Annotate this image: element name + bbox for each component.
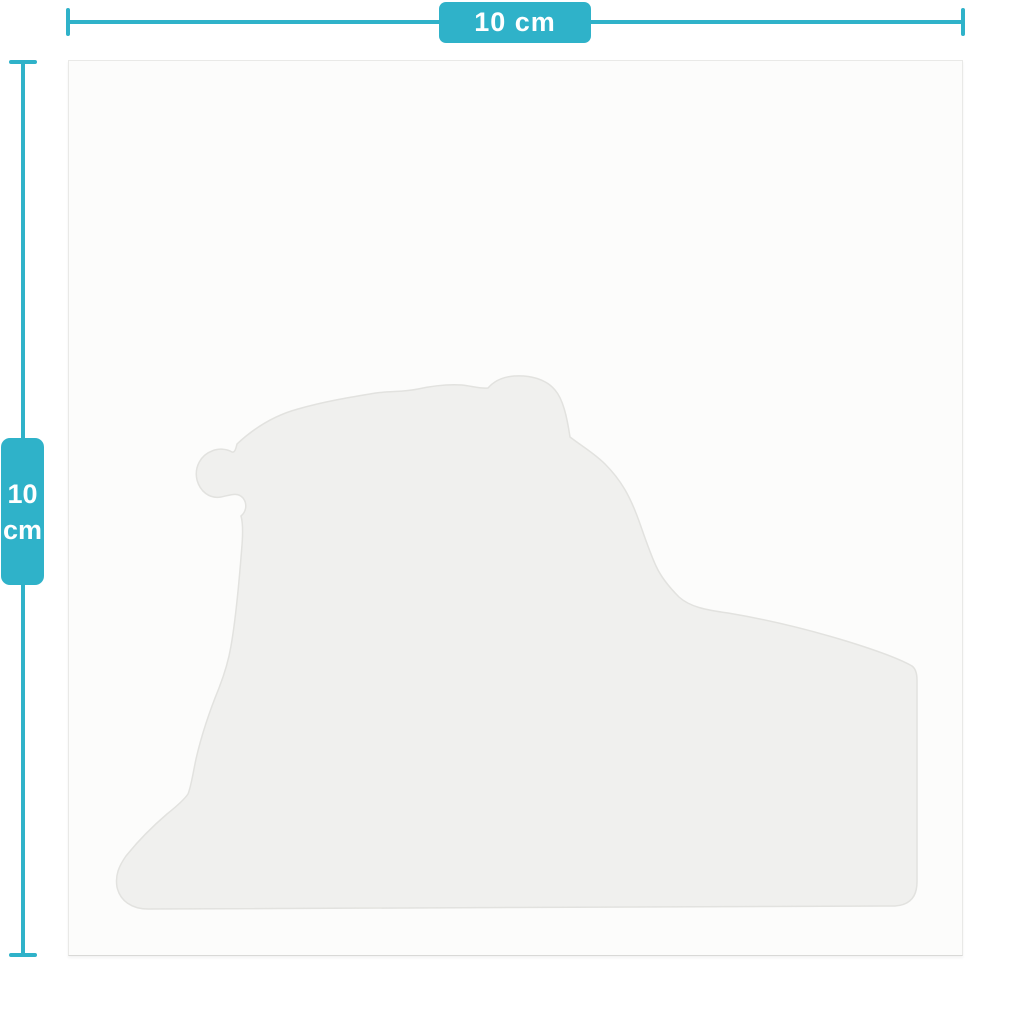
width-dimension-tick-right bbox=[961, 8, 965, 36]
sticker-canvas bbox=[68, 60, 963, 956]
height-dimension-label: 10 cm bbox=[1, 438, 44, 585]
height-dimension-tick-bottom bbox=[9, 953, 37, 957]
height-dimension-value: 10 bbox=[7, 476, 37, 512]
dimension-diagram: 10 cm 10 cm bbox=[0, 0, 1024, 1024]
width-dimension-label: 10 cm bbox=[439, 2, 591, 43]
height-dimension-unit: cm bbox=[3, 512, 42, 548]
height-dimension-tick-top bbox=[9, 60, 37, 64]
width-dimension-tick-left bbox=[66, 8, 70, 36]
